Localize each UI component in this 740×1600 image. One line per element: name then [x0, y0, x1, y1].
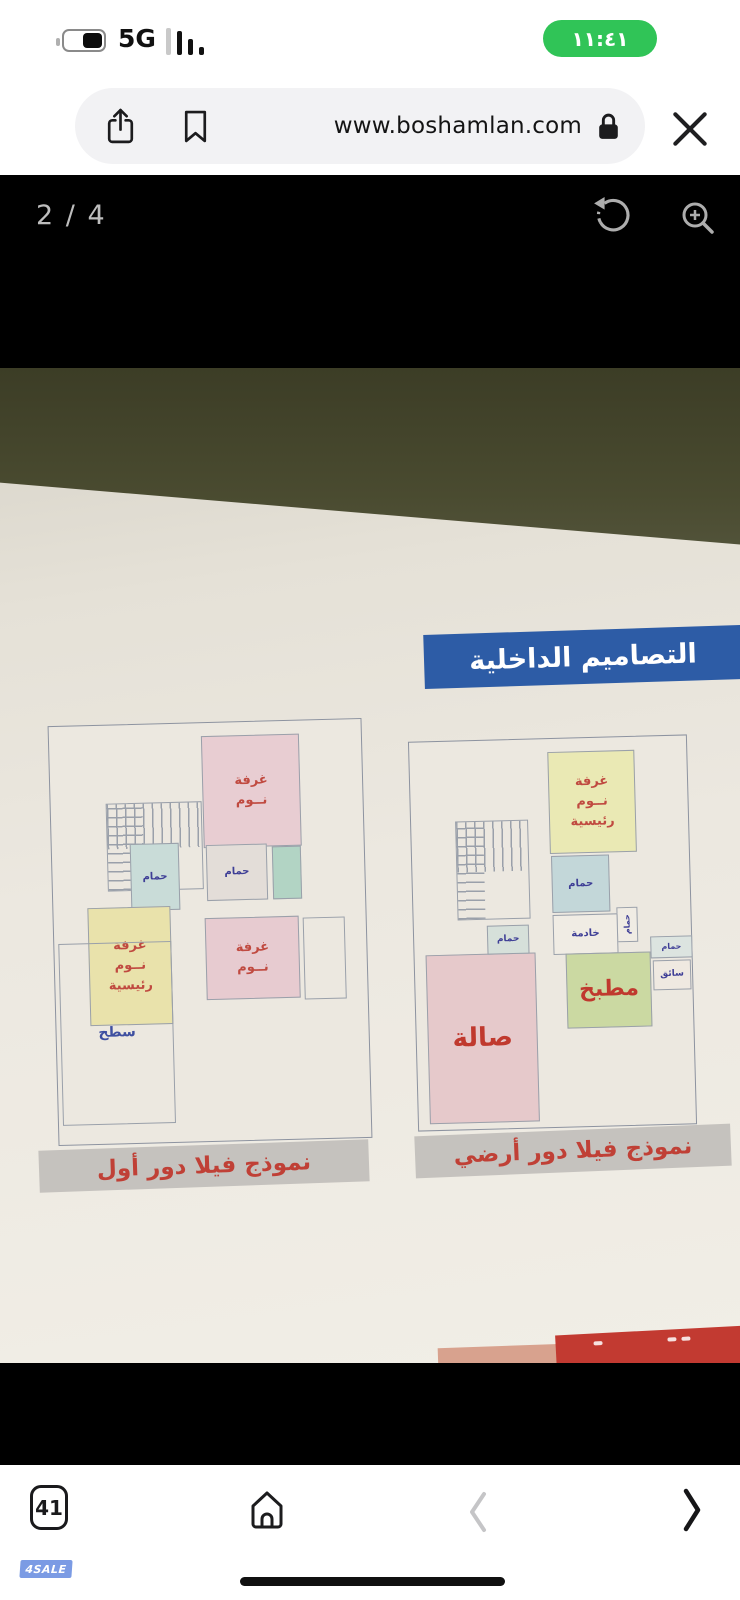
room-bathroom-middle: حمام	[206, 843, 268, 901]
browser-toolbar: www.boshamlan.com	[0, 85, 740, 175]
phone-screen: 5G ١١:٤١ www.boshamlan.com	[0, 0, 740, 1600]
caption-first-floor: نموذج فيلا دور أول	[38, 1139, 369, 1192]
room-label-bathroom-left: حمام	[142, 869, 167, 885]
zoom-in-icon[interactable]	[678, 198, 718, 238]
tabs-button[interactable]: 41	[30, 1485, 68, 1530]
forward-button[interactable]	[680, 1486, 704, 1534]
caption-ground-floor: نموذج فيلا دور أرضي	[414, 1124, 731, 1179]
room-bedroom-top: غرفة نــوم	[201, 734, 302, 849]
room-label-roof-terrace: سطح	[98, 1022, 136, 1045]
forsale-watermark-text: 4SALE	[25, 1563, 67, 1576]
room-label-kitchen: مطبخ	[579, 972, 640, 1008]
room-dressing-room	[272, 846, 302, 900]
room-bathroom: حمام	[551, 854, 610, 912]
signal-bars-icon	[166, 28, 214, 55]
tab-count: 41	[35, 1496, 63, 1520]
viewer-toolbar: 2 / 4	[0, 193, 740, 243]
room-bathroom-small: حمام	[616, 907, 638, 943]
room-label-driver-room: سائق	[660, 968, 684, 983]
floorplan-photo[interactable]: التصاميم الداخلية غرفة نــومحمامحمامغرفة…	[0, 368, 740, 1363]
clock-time: ١١:٤١	[572, 27, 629, 51]
room-bathroom-left: حمام	[130, 843, 181, 911]
share-icon[interactable]	[105, 107, 136, 146]
room-label-guest-bathroom: حمام	[661, 940, 681, 953]
room-label-hall-bathroom: حمام	[497, 932, 520, 947]
bookmark-icon[interactable]	[182, 109, 209, 144]
home-button[interactable]	[247, 1488, 287, 1532]
network-label: 5G	[118, 24, 156, 53]
back-button[interactable]	[466, 1490, 490, 1534]
room-hall: صالة	[426, 952, 540, 1124]
room-driver-room: سائق	[653, 959, 692, 990]
image-viewer: 2 / 4 التصاميم الداخلية غرفة نــومحمامحم…	[0, 175, 740, 1465]
partial-banner-shadow	[438, 1344, 567, 1363]
plan-ground-floor: غرفة نــوم رئيسيةحمامحمامخادمةحمامسائقمط…	[408, 734, 697, 1131]
lock-icon	[596, 111, 621, 142]
room-hall-bathroom: حمام	[487, 925, 530, 955]
url-bar[interactable]: www.boshamlan.com	[75, 88, 645, 164]
room-label-bathroom-small: حمام	[621, 914, 634, 934]
url-text[interactable]: www.boshamlan.com	[209, 113, 582, 139]
room-bedroom-middle: غرفة نــوم	[205, 916, 301, 1000]
time-pill[interactable]: ١١:٤١	[543, 20, 657, 57]
room-guest-bathroom: حمام	[650, 935, 693, 958]
room-label-master-bedroom: غرفة نــوم رئيسية	[569, 771, 615, 833]
room-label-bedroom-middle: غرفة نــوم	[235, 937, 269, 978]
plan-first-floor: غرفة نــومحمامحمامغرفة نــومغرفة نــوم ر…	[48, 718, 373, 1146]
caption-first-floor-text: نموذج فيلا دور أول	[96, 1149, 311, 1182]
room-label-bathroom-middle: حمام	[224, 864, 249, 880]
room-label-bathroom: حمام	[568, 876, 593, 892]
photo-title-banner: التصاميم الداخلية	[423, 625, 740, 689]
room-label-bedroom-top: غرفة نــوم	[234, 770, 268, 811]
table-surface	[0, 368, 740, 550]
battery-icon	[62, 29, 106, 52]
room-balcony	[303, 916, 347, 999]
room-roof-terrace: سطح	[58, 941, 176, 1126]
status-bar: 5G ١١:٤١	[0, 0, 740, 85]
room-master-bedroom: غرفة نــوم رئيسية	[547, 750, 637, 854]
rotate-icon[interactable]	[592, 196, 634, 238]
room-maid-room: خادمة	[553, 913, 619, 955]
room-label-maid-room: خادمة	[571, 926, 600, 942]
close-button[interactable]	[668, 107, 712, 151]
photo-title: التصاميم الداخلية	[469, 638, 697, 676]
caption-ground-floor-text: نموذج فيلا دور أرضي	[453, 1133, 693, 1169]
home-indicator[interactable]	[240, 1577, 505, 1586]
room-kitchen: مطبخ	[566, 951, 653, 1028]
room-label-hall: صالة	[452, 1017, 513, 1059]
forsale-watermark: 4SALE	[19, 1560, 72, 1578]
partial-red-banner	[555, 1325, 740, 1363]
browser-bottom-bar: 41 4SALE	[0, 1465, 740, 1600]
image-counter: 2 / 4	[36, 200, 107, 231]
room-stairs	[455, 820, 531, 921]
